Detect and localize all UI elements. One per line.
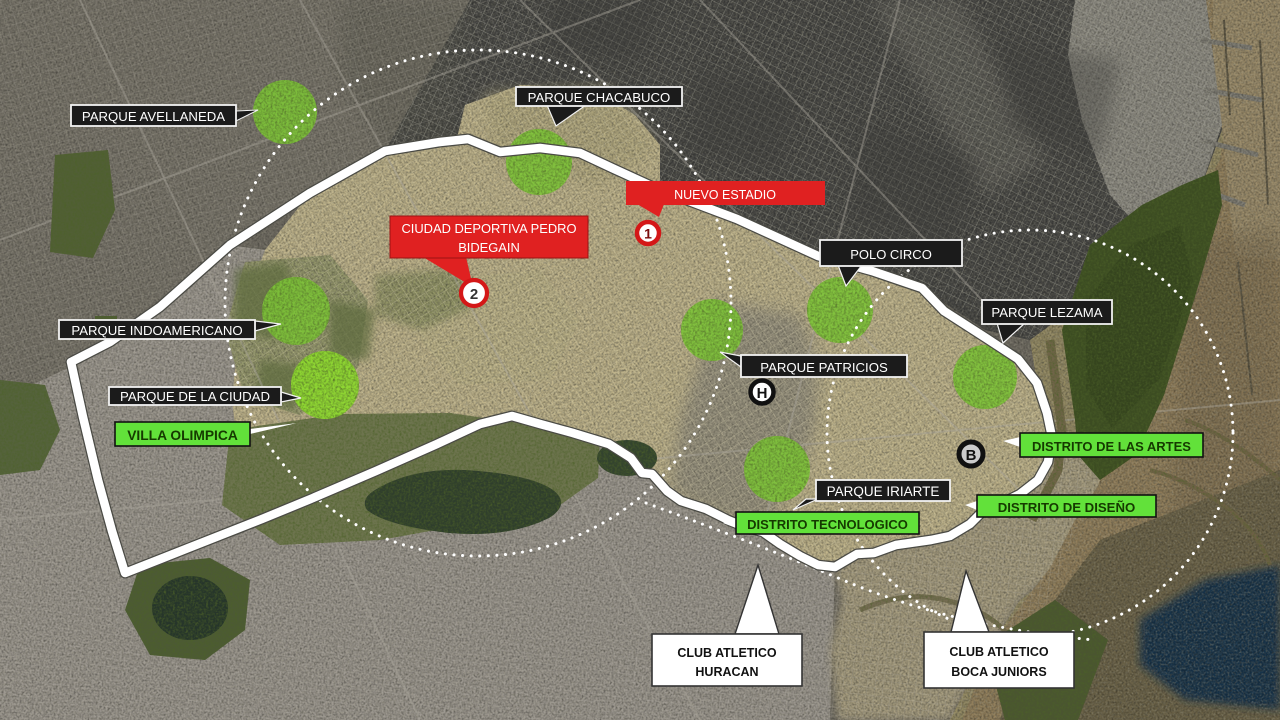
svg-text:CIUDAD DEPORTIVA PEDRO: CIUDAD DEPORTIVA PEDRO (401, 221, 576, 236)
svg-text:DISTRITO DE DISEÑO: DISTRITO DE DISEÑO (998, 500, 1136, 515)
svg-text:PARQUE DE LA CIUDAD: PARQUE DE LA CIUDAD (120, 389, 270, 404)
svg-text:CLUB ATLETICO: CLUB ATLETICO (677, 646, 777, 660)
svg-text:PARQUE INDOAMERICANO: PARQUE INDOAMERICANO (71, 323, 242, 338)
svg-text:1: 1 (644, 226, 652, 242)
svg-text:CLUB ATLETICO: CLUB ATLETICO (949, 645, 1049, 659)
svg-text:PARQUE PATRICIOS: PARQUE PATRICIOS (760, 360, 888, 375)
svg-text:DISTRITO TECNOLOGICO: DISTRITO TECNOLOGICO (747, 517, 908, 532)
svg-text:PARQUE AVELLANEDA: PARQUE AVELLANEDA (82, 109, 225, 124)
svg-text:H: H (757, 385, 768, 402)
svg-text:PARQUE CHACABUCO: PARQUE CHACABUCO (528, 90, 671, 105)
svg-text:DISTRITO DE LAS ARTES: DISTRITO DE LAS ARTES (1032, 439, 1191, 454)
svg-text:BOCA JUNIORS: BOCA JUNIORS (951, 665, 1046, 679)
svg-text:2: 2 (470, 286, 478, 303)
svg-text:BIDEGAIN: BIDEGAIN (458, 240, 520, 255)
svg-text:VILLA OLIMPICA: VILLA OLIMPICA (127, 428, 238, 443)
svg-text:B: B (966, 447, 977, 464)
svg-text:HURACAN: HURACAN (695, 665, 758, 679)
svg-text:POLO CIRCO: POLO CIRCO (850, 247, 932, 262)
svg-text:PARQUE IRIARTE: PARQUE IRIARTE (827, 484, 940, 499)
svg-text:PARQUE LEZAMA: PARQUE LEZAMA (991, 305, 1102, 320)
svg-text:NUEVO ESTADIO: NUEVO ESTADIO (674, 188, 776, 202)
